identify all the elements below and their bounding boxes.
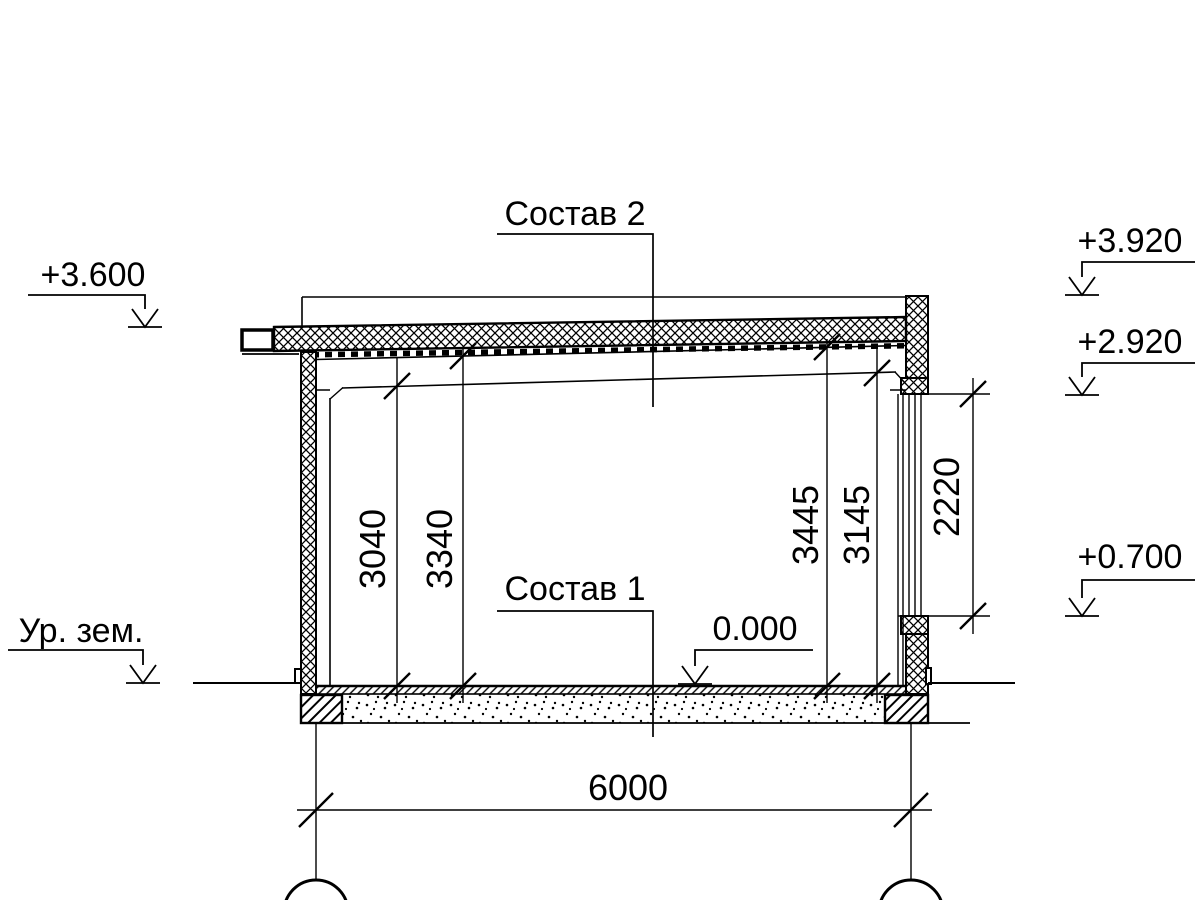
dim-label-3040: 3040 — [354, 489, 392, 609]
elevation-label-3920: +3.920 — [1060, 223, 1200, 260]
elevation-label-0700: +0.700 — [1060, 539, 1200, 576]
dim-label-span: 6000 — [558, 768, 698, 808]
callout-floor-label: Состав 1 — [455, 571, 695, 608]
axis-bubble-left — [284, 880, 348, 900]
callout-roof-label: Состав 2 — [455, 196, 695, 233]
elevation-label-3600: +3.600 — [23, 257, 163, 294]
left-wall — [295, 352, 343, 694]
window-sill — [901, 616, 928, 634]
right-wall — [890, 296, 931, 694]
section-drawing-canvas — [0, 0, 1200, 900]
dim-label-3445: 3445 — [787, 465, 825, 585]
ceiling-line — [342, 372, 896, 388]
elevation-marker-3920 — [1065, 262, 1195, 295]
elevation-marker-0700 — [1065, 580, 1195, 616]
dim-label-3340: 3340 — [421, 489, 459, 609]
elevation-marker-2920 — [1065, 363, 1195, 395]
elevation-marker-ground — [8, 650, 160, 683]
axis-bubble-right — [879, 880, 943, 900]
elevation-marker-0000 — [678, 650, 813, 684]
elevation-label-0000: 0.000 — [685, 611, 825, 648]
elevation-label-2920: +2.920 — [1060, 324, 1200, 361]
window-lintel — [901, 378, 928, 394]
dim-vertical-lines — [397, 339, 990, 703]
elevation-label-ground: Ур. зем. — [6, 613, 156, 650]
foundation-right — [885, 695, 928, 723]
bedding-layer — [301, 694, 970, 723]
elevation-marker-3600 — [28, 295, 162, 327]
floor-slab — [316, 686, 906, 694]
dim-label-2220: 2220 — [928, 437, 966, 557]
foundation-left — [301, 695, 342, 723]
section-drawing: Состав 2 Состав 1 +3.600 Ур. зем. +3.920… — [0, 0, 1200, 900]
dim-label-3145: 3145 — [838, 465, 876, 585]
